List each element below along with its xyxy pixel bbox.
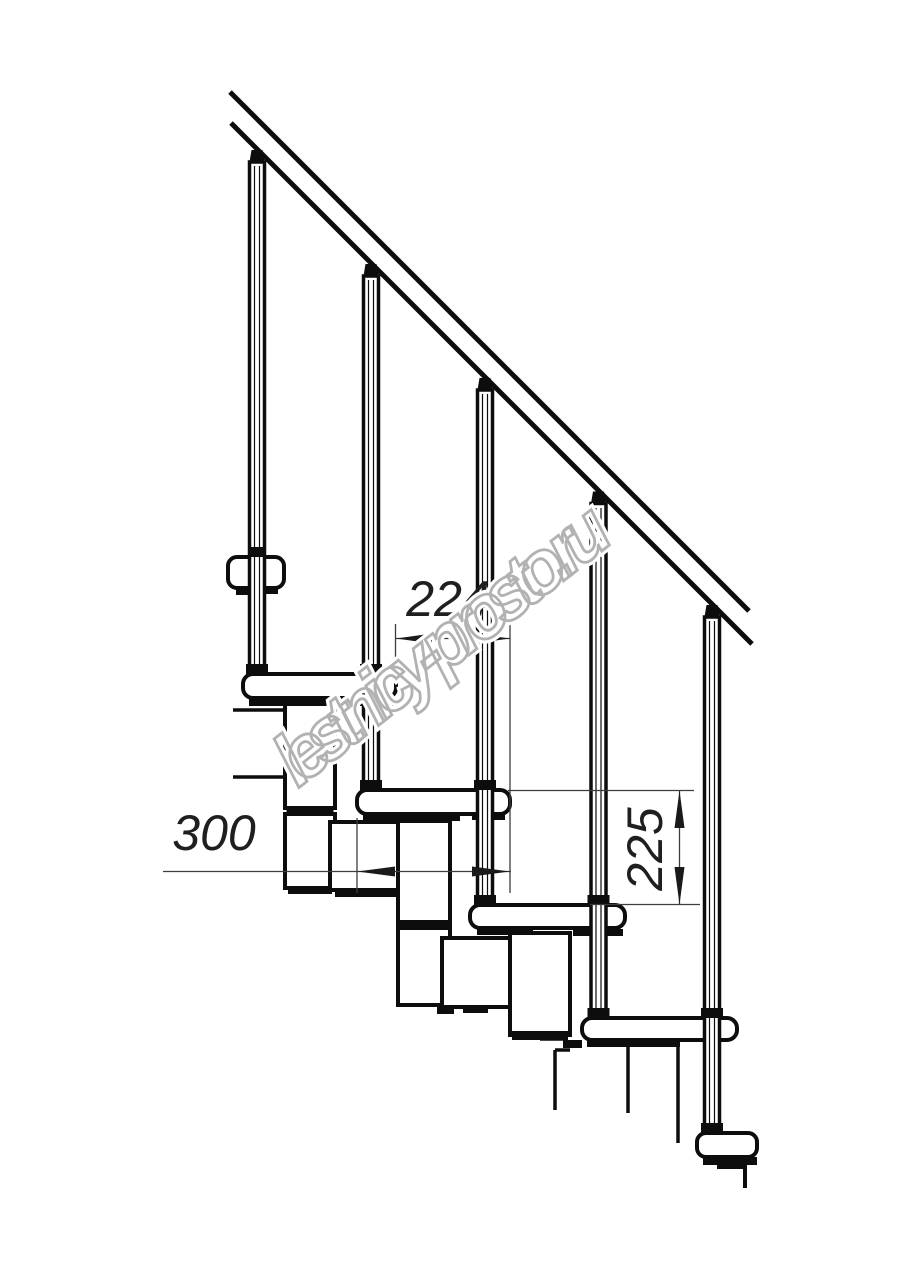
module-chain-3 xyxy=(510,933,582,1110)
staircase-section-svg: 224 300 225 lestnicy-prosto.ru lestnicy-… xyxy=(0,0,914,1280)
baluster-1-rail-cap xyxy=(250,150,265,162)
lower-landing-bracket xyxy=(697,1133,757,1188)
staircase-drawing-canvas: 224 300 225 lestnicy-prosto.ru lestnicy-… xyxy=(0,0,914,1280)
dim-label-step-rise: 225 xyxy=(617,807,673,892)
baluster-1 xyxy=(246,150,268,674)
baluster-1-base-collar xyxy=(246,664,268,674)
dim-label-tread-width: 300 xyxy=(172,805,256,861)
watermark: lestnicy-prosto.ru lestnicy-prosto.ru xyxy=(257,488,626,801)
watermark-text: lestnicy-prosto.ru xyxy=(257,488,626,801)
baluster-5 xyxy=(701,605,723,1133)
module-chain-4 xyxy=(587,1038,680,1143)
